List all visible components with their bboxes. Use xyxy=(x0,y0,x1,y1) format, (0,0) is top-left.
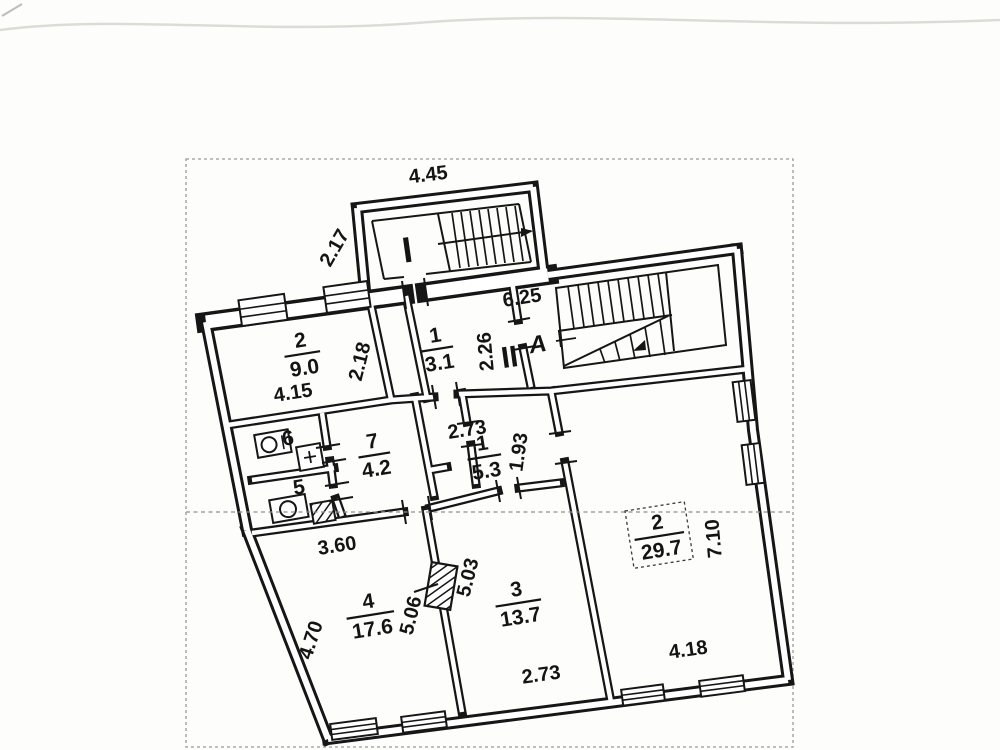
room-label-3-13.7: 3 13.7 xyxy=(492,575,545,633)
room-area: 29.7 xyxy=(640,536,684,565)
room-area: 4.2 xyxy=(360,456,392,483)
dim-7.10: 7.10 xyxy=(701,518,726,559)
room-area: 9.0 xyxy=(288,355,320,382)
window-icon xyxy=(742,443,765,485)
window-icon xyxy=(323,281,370,313)
window-icon xyxy=(238,294,287,326)
room-number: 3 xyxy=(509,577,524,602)
window-icon xyxy=(699,675,745,697)
room-area: 3.1 xyxy=(423,350,456,377)
window-icon xyxy=(733,380,756,422)
staircase-annex xyxy=(372,204,533,279)
room-number: 1 xyxy=(428,323,443,348)
dim-2.18: 2.18 xyxy=(345,340,376,383)
room-label-6: 6 xyxy=(280,426,295,451)
dim-3.60: 3.60 xyxy=(316,532,358,560)
dim-4.18: 4.18 xyxy=(667,636,709,663)
room-number: 4 xyxy=(361,589,376,614)
room-label-5: 5 xyxy=(291,475,306,500)
room-number: 2 xyxy=(650,510,665,535)
dim-6.25: 6.25 xyxy=(501,284,543,312)
room-label-4-17.6: 4 17.6 xyxy=(343,587,398,645)
room-label-7-4.2: 7 4.2 xyxy=(355,428,395,483)
floor-plan-page: I II A 2 9.0 1 3.1 7 4.2 1 5.3 4 17.6 xyxy=(0,0,1000,750)
dim-1.93: 1.93 xyxy=(505,431,532,473)
dim-2.26: 2.26 xyxy=(473,331,498,372)
dim-5.03: 5.03 xyxy=(453,556,484,599)
stair-direction-arrow xyxy=(633,340,646,351)
room-area: 13.7 xyxy=(499,603,543,632)
room-area: 5.3 xyxy=(470,458,502,485)
room-number: 7 xyxy=(365,429,380,454)
dim-2.73-lower: 2.73 xyxy=(520,661,562,688)
entrance-marker-i: I xyxy=(399,229,415,271)
floor-plan: I II A 2 9.0 1 3.1 7 4.2 1 5.3 4 17.6 xyxy=(0,0,1000,750)
room-number: 2 xyxy=(293,328,308,353)
dim-4.70: 4.70 xyxy=(295,618,328,662)
dim-2.17: 2.17 xyxy=(316,226,355,271)
dim-5.06: 5.06 xyxy=(396,594,427,637)
scan-artifact-corner xyxy=(2,4,22,16)
entrance-marker-ii: II xyxy=(499,340,520,375)
staircase-main xyxy=(556,265,726,368)
stair-letter-a: A xyxy=(526,330,548,360)
dim-4.15: 4.15 xyxy=(272,379,314,407)
stair-direction-arrow xyxy=(521,228,533,237)
scan-artifact-line xyxy=(0,18,1000,30)
room-label-2-9.0: 2 9.0 xyxy=(281,326,325,382)
room-area: 17.6 xyxy=(351,615,395,644)
dim-4.45: 4.45 xyxy=(408,162,449,189)
